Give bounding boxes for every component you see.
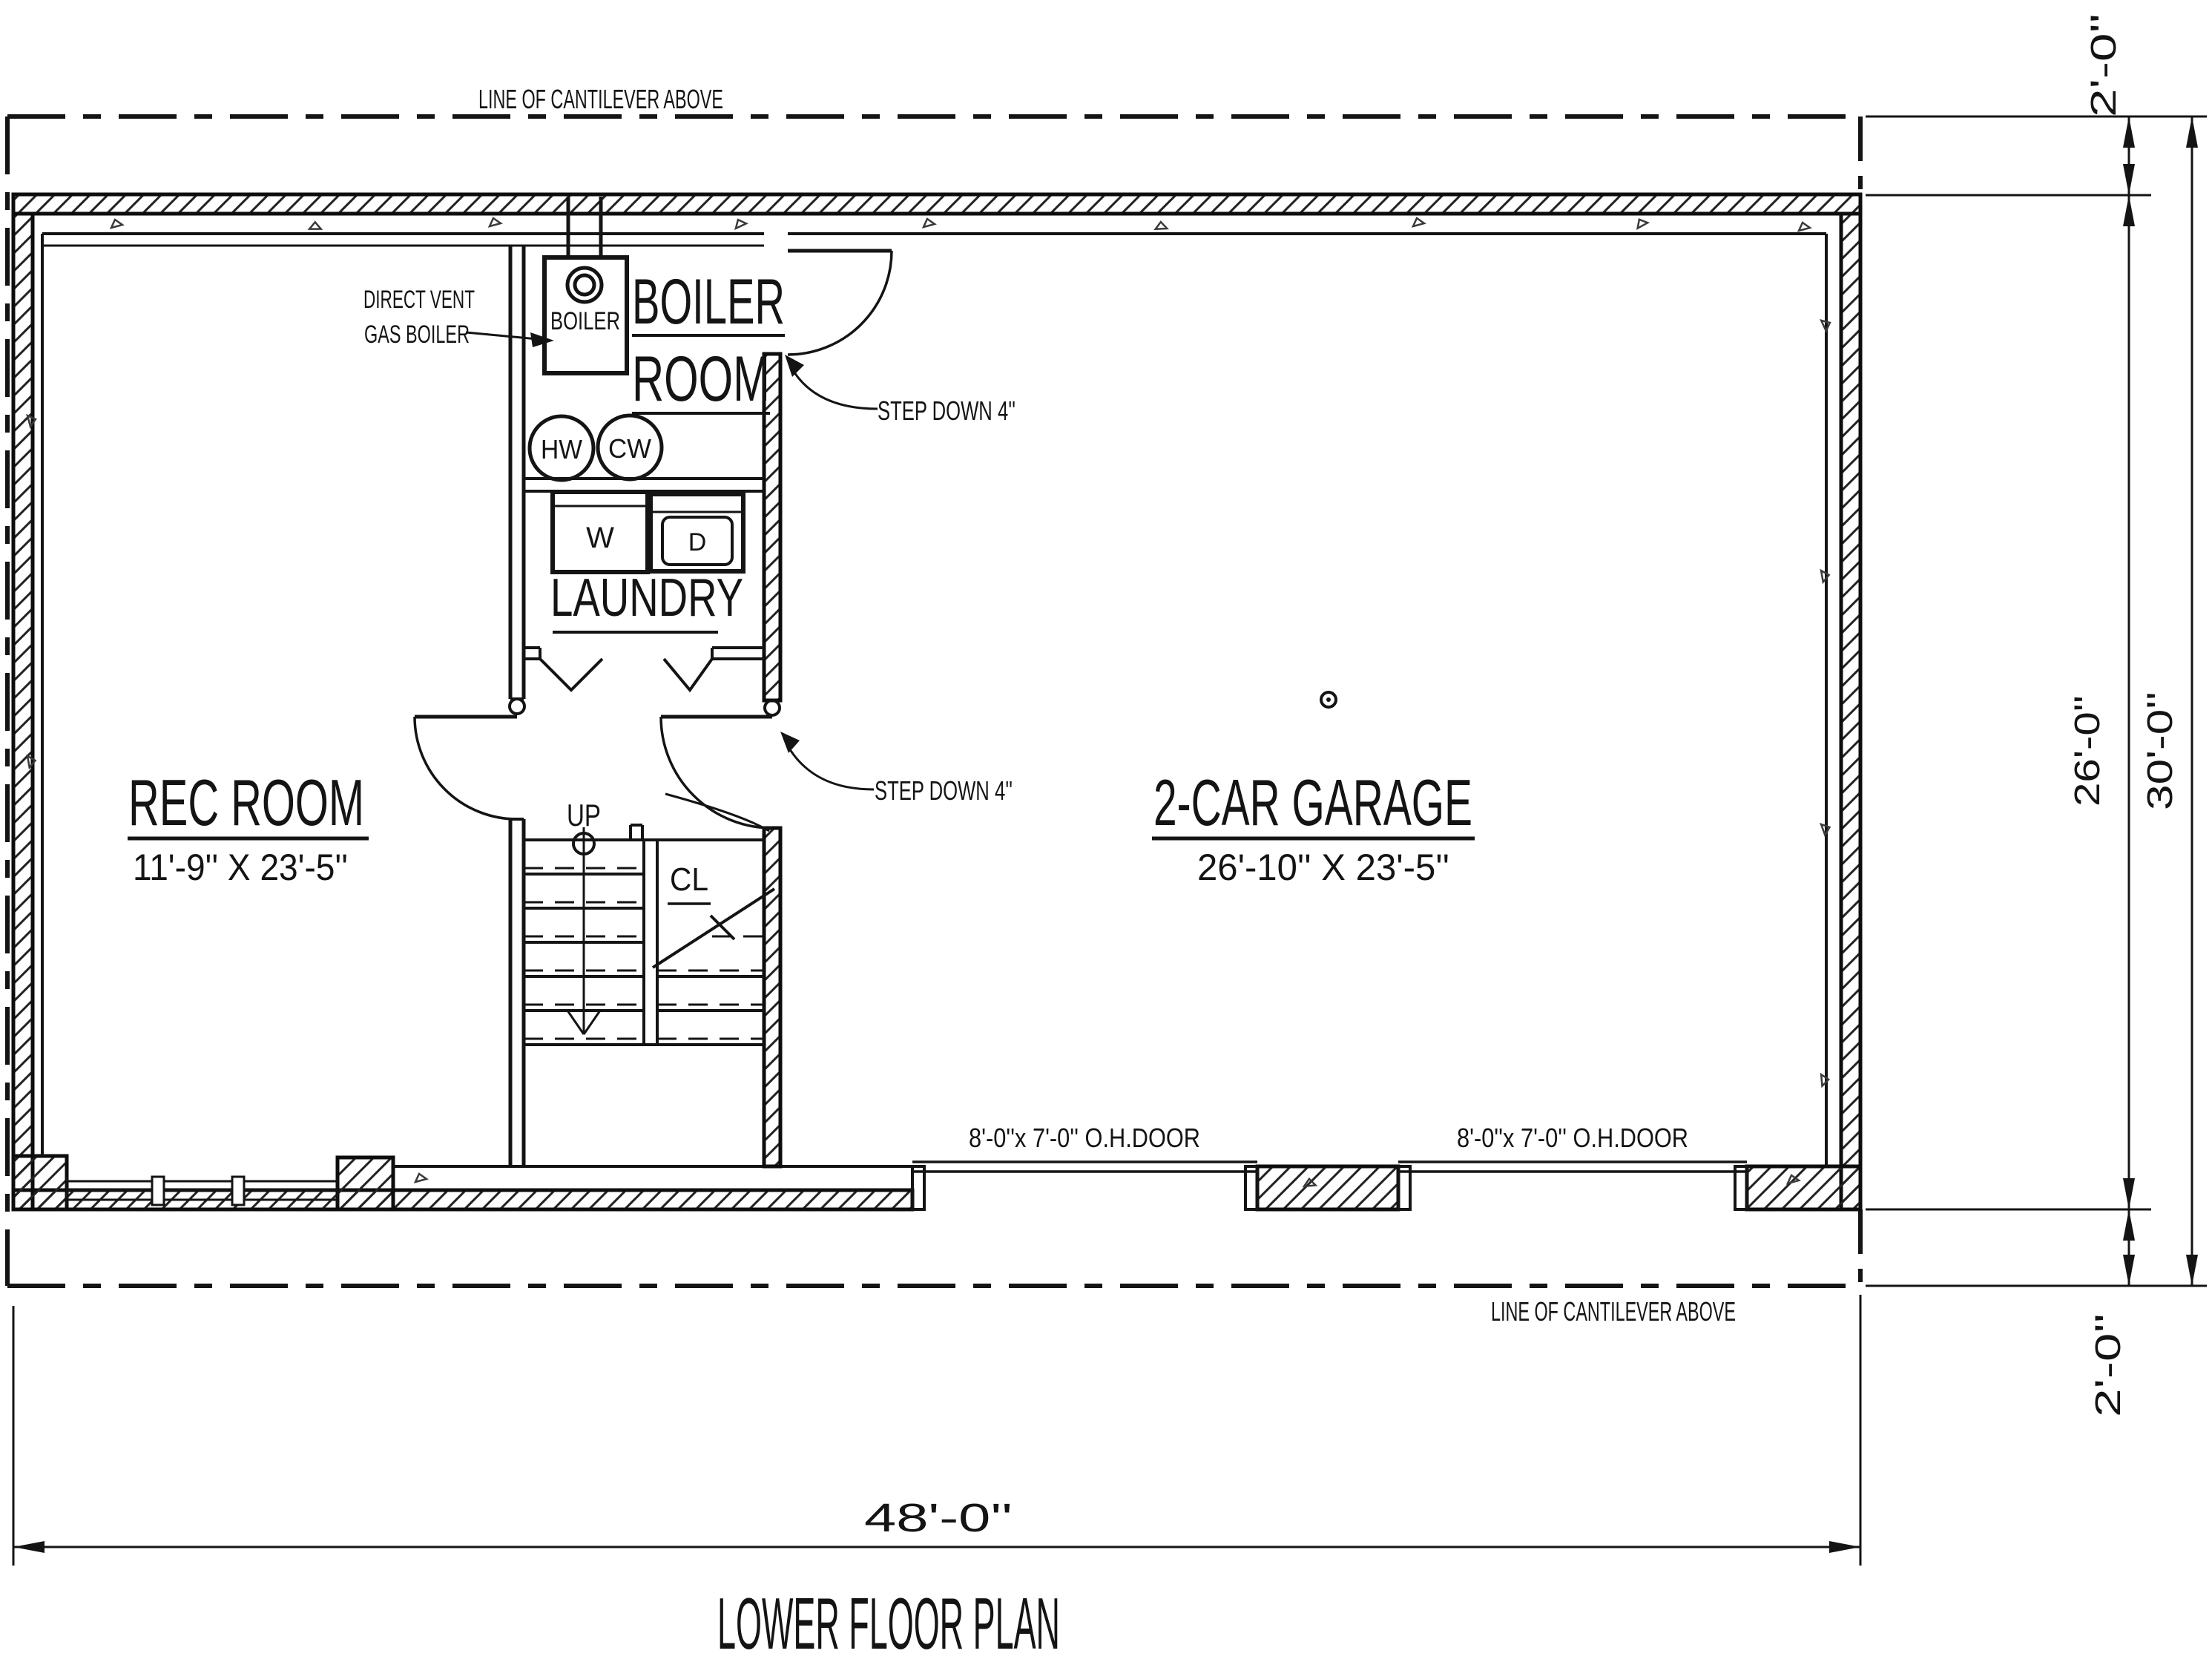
lower-floor-plan-drawing: LINE OF CANTILEVER ABOVE LINE OF CANTILE… — [0, 0, 2212, 1662]
cantilever-note-bottom: LINE OF CANTILEVER ABOVE — [1491, 1296, 1736, 1327]
door-hinge — [765, 700, 780, 715]
dim-cantilever-top: 2'-0'' — [2084, 13, 2124, 117]
door-hinge — [510, 699, 524, 714]
west-wall — [13, 214, 33, 1209]
stair-up-label: UP — [567, 798, 601, 832]
oh-door-label-right: 8'-0''x 7'-0'' O.H.DOOR — [1457, 1123, 1688, 1153]
dryer-label: D — [688, 528, 707, 556]
north-wall — [13, 194, 1860, 214]
boiler-unit-label: BOILER — [550, 307, 620, 335]
boiler-room-label-2: ROOM — [632, 344, 770, 415]
bifold-door-left — [540, 659, 602, 690]
southwest-corner-pier — [13, 1156, 67, 1209]
dim-cantilever-bottom: 2'-0'' — [2089, 1313, 2128, 1417]
window-mullion — [152, 1177, 164, 1205]
boiler-room-label-1: BOILER — [632, 266, 785, 338]
garage-label: 2-CAR GARAGE — [1153, 766, 1472, 839]
exterior-walls — [13, 194, 1860, 1209]
laundry-fixtures — [553, 492, 743, 572]
cantilever-note-top: LINE OF CANTILEVER ABOVE — [478, 84, 723, 114]
garage-door-swing — [661, 717, 772, 828]
rec-room-size: 11'-9'' X 23'-5'' — [133, 847, 348, 888]
boiler-note-2: GAS BOILER — [364, 321, 470, 349]
step-down-note-boiler: STEP DOWN 4'' — [878, 395, 1016, 426]
concrete-triangle-marks — [27, 217, 1831, 1188]
garage-wall-lower — [764, 828, 780, 1166]
bifold-door-right — [664, 659, 712, 690]
south-wall-right-corner — [1747, 1166, 1860, 1209]
window-mullion — [232, 1177, 244, 1205]
lally-column-center — [1326, 697, 1331, 702]
laundry-label: LAUNDRY — [550, 568, 743, 628]
cw-label: CW — [608, 433, 651, 464]
boiler-door-swing — [788, 251, 892, 355]
closet-label: CL — [670, 861, 708, 898]
text-labels: LINE OF CANTILEVER ABOVE LINE OF CANTILE… — [128, 13, 2180, 1662]
east-wall — [1841, 214, 1860, 1209]
garage-size: 26'-10'' X 23'-5'' — [1197, 847, 1449, 888]
cantilever-outline — [7, 116, 1860, 1286]
dim-overall-depth: 30'-0'' — [2141, 692, 2180, 810]
dim-overall-width: 48'-0'' — [864, 1496, 1013, 1540]
hw-label: HW — [541, 434, 582, 464]
dimension-lines — [13, 116, 2207, 1566]
garage-door-pier — [1257, 1166, 1398, 1209]
washer-label: W — [586, 522, 614, 554]
window-end-pier — [338, 1157, 393, 1209]
dim-main-depth: 26'-0'' — [2068, 695, 2107, 807]
closet-rod — [653, 889, 774, 968]
rec-room-door-swing — [415, 717, 517, 819]
boiler-note-1: DIRECT VENT — [363, 286, 475, 314]
page-title: LOWER FLOOR PLAN — [717, 1583, 1060, 1662]
step-down-note-garage: STEP DOWN 4'' — [875, 775, 1013, 806]
staircase — [524, 827, 774, 1045]
rec-room-windows — [67, 1177, 338, 1205]
rec-room-label: REC ROOM — [128, 766, 364, 839]
oh-door-label-left: 8'-0''x 7'-0'' O.H.DOOR — [969, 1123, 1200, 1153]
